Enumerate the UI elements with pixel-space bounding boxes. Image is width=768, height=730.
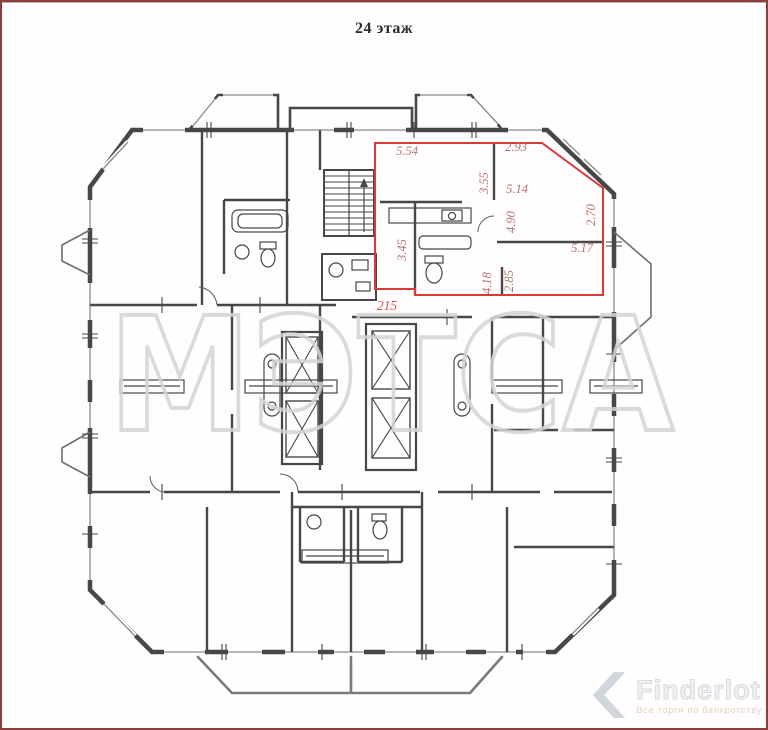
toilet-tank-icon [425,256,443,263]
finderlot-tagline: Все торги по банкротству [636,706,762,716]
balcony-left-upper [62,230,90,275]
bathtub-icon [419,236,471,249]
sink-icon [449,213,456,220]
finderlot-icon [588,670,630,722]
dimension-label: 3.55 [477,172,491,195]
dimension-label: 3.45 [395,239,409,262]
dimension-label: 5.14 [506,182,528,196]
bathtub-inner-icon [238,214,282,228]
sink-icon [329,263,343,277]
floor-plan-drawing: 5.54 2.93 3.55 5.14 4.90 2.70 3.45 5.17 … [2,2,768,730]
sink-icon [235,245,249,259]
dimension-label: 2.70 [584,203,598,226]
toilet-bowl-icon [373,521,387,539]
finderlot-logo: Finderlot Все торги по банкротству [588,670,762,722]
terrace-bottom [198,657,502,693]
dimension-label: 2.93 [505,140,527,154]
counter-icon [352,260,368,270]
toilet-tank-icon [372,514,386,521]
stair-arrow-head [360,178,368,187]
bathtub-icon [232,210,288,232]
dimension-label: 4.90 [504,210,518,233]
staircase [324,170,374,236]
toilet-bowl-icon [261,249,275,267]
floorplan-page: 24 этаж [0,0,768,730]
toilet-tank-icon [260,242,276,249]
dimension-label: 5.17 [571,241,594,255]
finderlot-wordmark: Finderlot [636,677,762,704]
watermark-text: МЭТСА [108,284,674,468]
sink-icon [307,515,321,529]
dimension-label: 5.54 [396,144,418,158]
toilet-bowl-icon [426,263,442,283]
balcony-left-lower [62,432,90,477]
